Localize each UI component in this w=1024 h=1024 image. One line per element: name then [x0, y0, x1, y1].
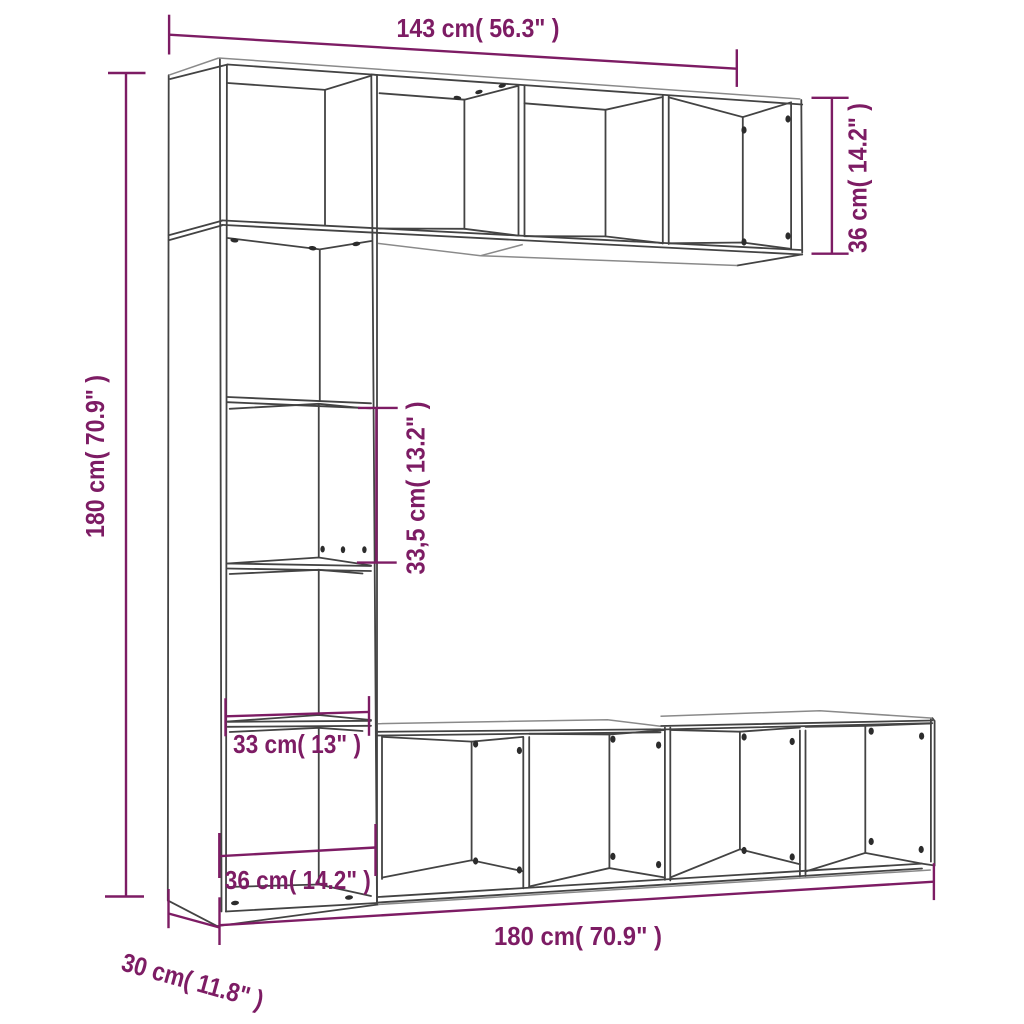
svg-text:33 cm( 13" ): 33 cm( 13" )	[233, 729, 361, 759]
svg-text:180 cm( 70.9" ): 180 cm( 70.9" )	[494, 921, 662, 951]
svg-text:36 cm( 14.2" ): 36 cm( 14.2" )	[843, 103, 873, 253]
svg-text:33,5 cm( 13.2" ): 33,5 cm( 13.2" )	[401, 402, 431, 575]
svg-text:180 cm( 70.9" ): 180 cm( 70.9" )	[80, 375, 110, 538]
svg-text:36 cm( 14.2" ): 36 cm( 14.2" )	[225, 865, 371, 895]
svg-text:143 cm( 56.3" ): 143 cm( 56.3" )	[397, 13, 560, 43]
